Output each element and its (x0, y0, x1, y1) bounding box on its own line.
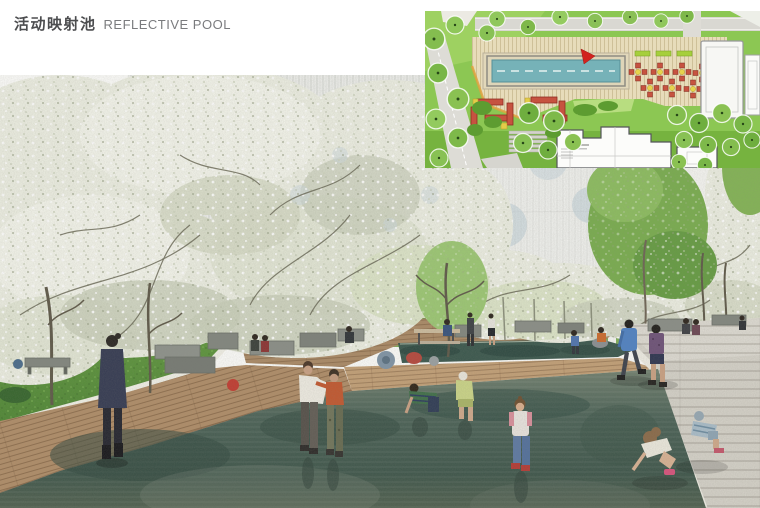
lap-pool (483, 53, 629, 89)
title-chinese: 活动映射池 (14, 16, 97, 33)
hedge-planters (635, 51, 692, 56)
presentation-page: 活动映射池REFLECTIVE POOL (0, 0, 760, 508)
title-english: REFLECTIVE POOL (104, 17, 231, 32)
page-title: 活动映射池REFLECTIVE POOL (14, 13, 231, 34)
site-plan-inset (425, 11, 760, 168)
